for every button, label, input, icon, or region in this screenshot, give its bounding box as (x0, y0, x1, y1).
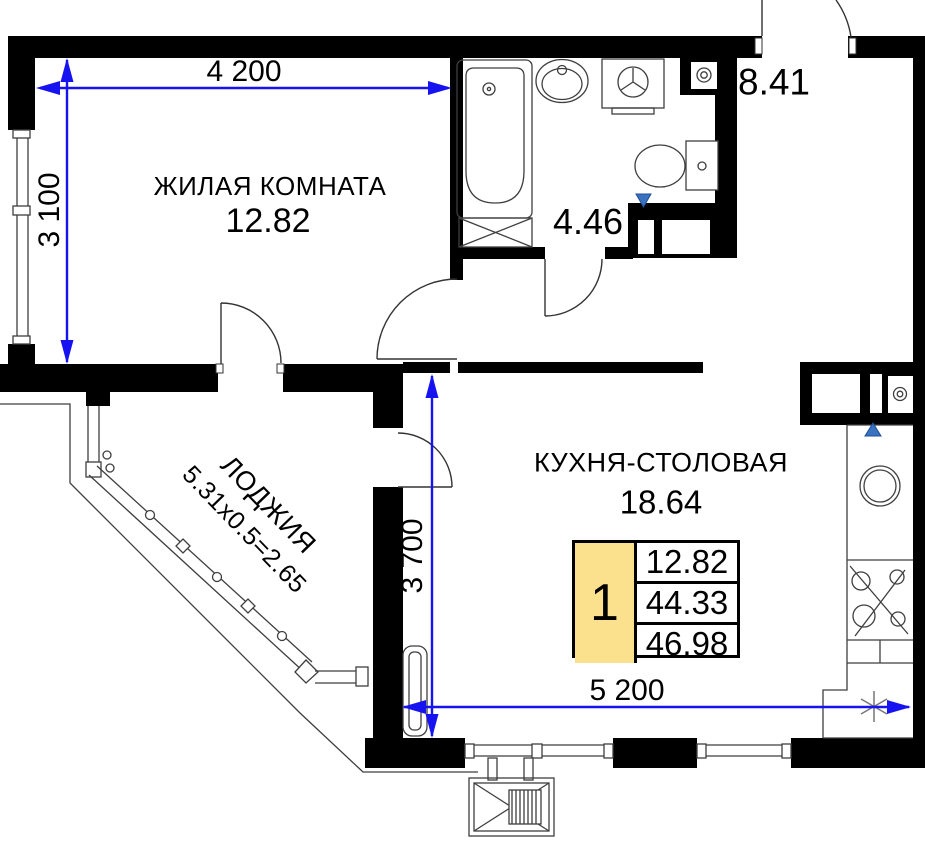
kitchen-window-2 (697, 738, 791, 768)
kitchen-door (398, 433, 452, 487)
dimension-lines (36, 58, 911, 738)
bathroom-door (545, 259, 602, 316)
dimension-bottom: 5 200 (589, 676, 664, 706)
stove-icon (850, 566, 908, 636)
bathtub-icon (457, 60, 532, 247)
living-area-value: 12.82 (637, 543, 737, 584)
apartment-info-table: 1 12.82 44.33 46.98 (572, 540, 740, 658)
kitchen-window-1 (465, 738, 613, 768)
kitchen-label: КУХНЯ-СТОЛОВАЯ (534, 450, 788, 477)
living-room-window (8, 130, 35, 344)
loggia-living-door (216, 303, 284, 373)
dimension-left: 3 100 (35, 172, 65, 247)
living-room-label: ЖИЛАЯ КОМНАТА (154, 173, 387, 199)
hall-area: 8.41 (738, 64, 810, 101)
kitchen-counter (823, 425, 913, 738)
dimension-middle: 3 700 (398, 518, 428, 593)
service-shafts (638, 62, 913, 413)
kitchen-area: 18.64 (620, 486, 703, 519)
room-count-cell: 1 (575, 543, 637, 663)
washing-machine-icon (602, 59, 664, 114)
living-room-area: 12.82 (225, 204, 310, 238)
floor-plan: 4 200 3 100 3 700 5 200 ЖИЛАЯ КОМНАТА 12… (0, 0, 925, 844)
radiator-icon (403, 646, 427, 736)
bathroom-area: 4.46 (553, 204, 623, 240)
apartment-area-value: 44.33 (637, 584, 737, 625)
sink-icon (536, 60, 588, 103)
dimension-top: 4 200 (206, 57, 281, 87)
walls (0, 36, 925, 768)
entrance-door (755, 0, 856, 54)
corridor-door (377, 279, 457, 359)
floor-plan-drawing (0, 0, 925, 844)
kitchen-sink-icon (860, 466, 900, 506)
air-conditioner-icon (469, 758, 554, 836)
toilet-icon (635, 141, 718, 190)
total-area-value: 46.98 (637, 625, 737, 663)
